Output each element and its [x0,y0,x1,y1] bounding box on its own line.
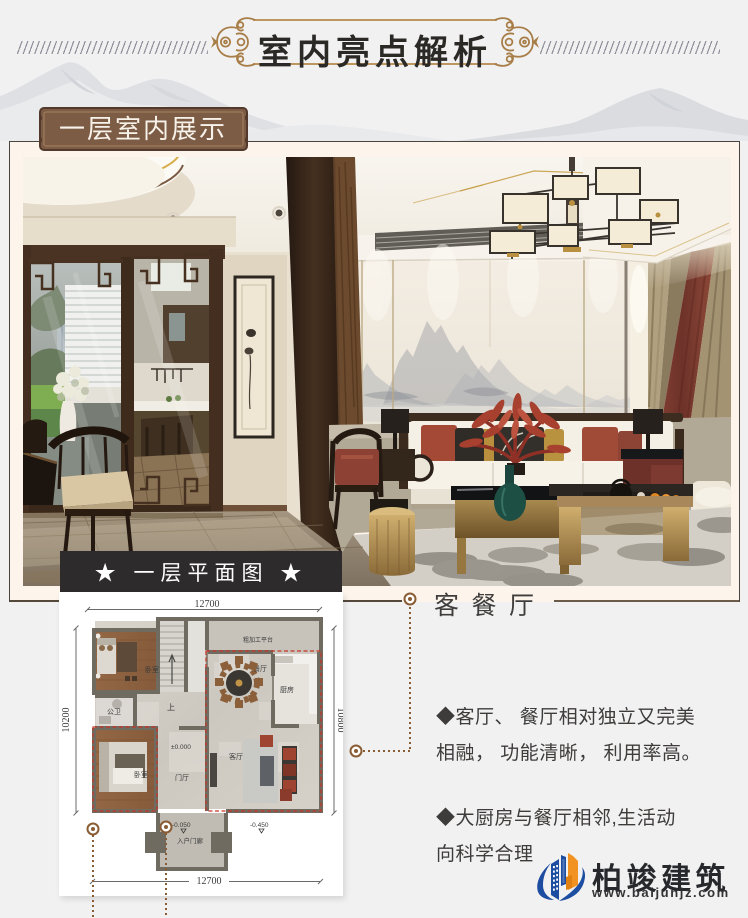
svg-text:卧室: 卧室 [134,770,148,779]
svg-text:卧室: 卧室 [145,665,159,674]
svg-text:客厅: 客厅 [229,752,243,761]
svg-text:10200: 10200 [61,708,72,733]
svg-text:12700: 12700 [195,599,220,610]
svg-text:厨房: 厨房 [280,685,294,694]
svg-text:-0.450: -0.450 [250,822,269,829]
svg-text:12700: 12700 [197,876,222,887]
svg-text:一层室内展示: 一层室内展示 [59,114,227,144]
svg-text:±0.000: ±0.000 [171,744,191,751]
svg-text:上: 上 [167,703,175,712]
svg-text:门厅: 门厅 [175,773,189,782]
svg-text:公卫: 公卫 [107,708,121,716]
svg-text:粗加工平台: 粗加工平台 [243,636,273,644]
